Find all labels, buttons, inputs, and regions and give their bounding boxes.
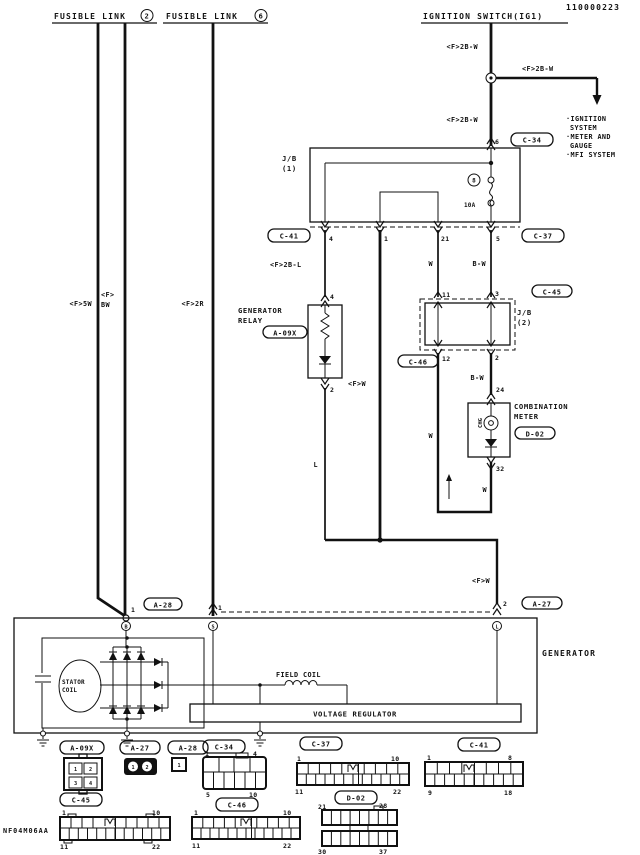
svg-text:1: 1 (131, 765, 134, 771)
svg-text:B: B (124, 624, 127, 630)
svg-text:S: S (211, 624, 214, 630)
ground-icon (37, 728, 49, 746)
pinout-a28-label: A-28 (179, 745, 198, 753)
pinout-c37: C-37 1 10 11 22 (295, 737, 409, 796)
connector-ref-a27: A-27 (522, 597, 562, 609)
svg-text:C-37: C-37 (534, 233, 553, 241)
diode-icon (154, 658, 162, 666)
svg-text:11: 11 (192, 842, 200, 850)
wire-code-w-upper: W (429, 260, 434, 268)
branch-destinations: ·IGNITION SYSTEM ·METER AND GAUGE ·MFI S… (566, 115, 615, 159)
svg-text:1: 1 (177, 763, 180, 769)
wire-code-2bw-2: <F>2B-W (522, 65, 554, 73)
wire-code-2bw-3: <F>2B-W (447, 116, 479, 124)
ground-icon (254, 722, 266, 746)
jb1-pin-out-1: 4 (329, 235, 333, 243)
diode-icon (137, 652, 145, 660)
svg-text:1: 1 (194, 809, 198, 817)
jb2-pin-out-1: 12 (442, 355, 450, 363)
svg-text:A-28: A-28 (154, 602, 173, 610)
svg-text:10: 10 (283, 809, 291, 817)
relay-label-l2: RELAY (238, 316, 263, 325)
svg-text:1: 1 (74, 767, 77, 773)
wire-code-2bw-1: <F>2B-W (447, 43, 479, 51)
combination-meter: CHG COMBINATION METER D-02 32 (468, 402, 568, 473)
jb2-pin-in-2: 3 (495, 290, 499, 298)
voltage-regulator-label: VOLTAGE REGULATOR (313, 710, 397, 719)
svg-text:10: 10 (152, 809, 160, 817)
connector-ref-a28: A-28 (144, 598, 182, 610)
gen-pin-b: 1 (131, 606, 135, 614)
svg-text:L: L (495, 624, 498, 630)
capacitor-icon (35, 673, 51, 683)
charge-lamp-icon (484, 416, 498, 430)
connector-key-icon (241, 819, 251, 826)
gen-pin-s: 1 (218, 604, 222, 612)
connector-ref-c37: C-37 (522, 229, 564, 242)
chevron-icon (493, 609, 501, 615)
pinout-c45-label: C-45 (72, 797, 91, 805)
jb1-pin-out-4: 5 (496, 235, 500, 243)
pinout-c37-label: C-37 (312, 741, 331, 749)
fusible-link-6-number: 6 (259, 12, 264, 21)
gen-pin-l: 2 (503, 600, 507, 608)
charge-lamp-label: CHG (478, 417, 484, 428)
flow-arrow-icon (446, 474, 452, 499)
arrow-down-icon (593, 95, 602, 105)
svg-text:4: 4 (89, 781, 92, 787)
destination-line: ·IGNITION (566, 115, 606, 123)
meter-label-l2: METER (514, 412, 539, 421)
svg-text:9: 9 (428, 789, 432, 797)
fusible-link-2-number: 2 (145, 12, 150, 21)
fusible-link-wires: <F>5W <F> BW <F>2R (70, 23, 213, 616)
pinout-a09x-label: A-09X (70, 745, 94, 753)
connector-ref-c45: C-45 (532, 285, 572, 297)
svg-text:30: 30 (318, 848, 326, 855)
destination-line: SYSTEM (570, 124, 597, 132)
generator-relay: 4 2 GENERATOR RELAY A-09X <F>W (238, 293, 366, 394)
relay-label-l1: GENERATOR (238, 306, 282, 315)
charging-system-wiring-diagram: 110000223 FUSIBLE LINK 2 FUSIBLE LINK 6 … (0, 0, 640, 855)
svg-text:1: 1 (297, 755, 301, 763)
generator-label: GENERATOR (542, 649, 596, 658)
svg-text:10: 10 (391, 755, 399, 763)
wire-code-fw-relay: <F>W (348, 380, 366, 388)
svg-text:22: 22 (283, 842, 291, 850)
terminal-s-icon: S (209, 622, 218, 631)
diode-icon (319, 356, 331, 364)
relay-pin-in: 4 (330, 293, 334, 301)
wire-code-bw-l1: <F> (101, 291, 114, 299)
svg-text:C-34: C-34 (523, 137, 542, 145)
diode-icon (137, 706, 145, 714)
svg-text:18: 18 (504, 789, 512, 797)
svg-text:C-46: C-46 (409, 359, 428, 367)
svg-text:22: 22 (152, 843, 160, 851)
meter-label-l1: COMBINATION (514, 402, 568, 411)
svg-text:1: 1 (62, 809, 66, 817)
svg-text:11: 11 (60, 843, 68, 851)
diode-icon (154, 681, 162, 689)
pinout-c41: C-41 1 8 9 18 (425, 738, 523, 797)
jb1-pin-out-3: 21 (441, 235, 449, 243)
rectifier-bridge (100, 636, 168, 721)
svg-text:A-27: A-27 (533, 601, 552, 609)
junction-dot (377, 537, 382, 542)
svg-text:2: 2 (145, 765, 148, 771)
jb1-label-l1: J/B (282, 154, 297, 163)
terminal-b-icon: B (122, 622, 131, 631)
wire-code-fw-gen: <F>W (472, 577, 490, 585)
wire-code-2bl: <F>2B-L (270, 261, 301, 269)
svg-text:11: 11 (295, 788, 303, 796)
diode-icon (123, 652, 131, 660)
jb2-label-l1: J/B (517, 308, 532, 317)
svg-text:A-09X: A-09X (273, 330, 297, 338)
svg-text:D-02: D-02 (526, 431, 545, 439)
jb2-label-l2: (2) (517, 318, 532, 327)
wire-code-l: L (314, 461, 319, 469)
pinout-a27-label: A-27 (131, 745, 150, 753)
resistor-icon (321, 313, 329, 339)
pinout-c41-label: C-41 (470, 742, 489, 750)
pinout-c34-label: C-34 (215, 744, 234, 752)
ignition-switch-label: IGNITION SWITCH(IG1) (423, 12, 543, 21)
svg-text:3: 3 (74, 781, 77, 787)
diagram-code: NF04M06AA (3, 827, 49, 835)
power-source-fusible-link-2: FUSIBLE LINK 2 (52, 10, 157, 24)
connector-ref-a09x: A-09X (263, 326, 307, 338)
pinout-c34: C-34 1 4 5 10 (203, 740, 266, 799)
splice-icon (486, 73, 496, 83)
lamp-circuit-run: L <F>W (314, 388, 498, 604)
wire-code-bw-l2: BW (101, 301, 110, 309)
jb1-pin-in: 6 (495, 138, 499, 146)
pinout-d02: D-02 21 28 30 37 (318, 791, 397, 855)
connector-ref-c41: C-41 (268, 229, 310, 242)
svg-text:8: 8 (508, 754, 512, 762)
field-coil: FIELD COIL (168, 671, 347, 704)
pinout-c45: C-45 1 10 11 22 (60, 793, 170, 851)
wire-code-bw-lower: B-W (471, 374, 485, 382)
junction-block-1: J/B (1) 8 10A (282, 148, 520, 222)
relay-pin-out: 2 (330, 386, 334, 394)
svg-text:C-45: C-45 (543, 289, 562, 297)
stator-label-l1: STATOR (62, 679, 85, 686)
stator-label-l2: COIL (62, 687, 77, 694)
jb2-pin-in-1: 11 (442, 291, 450, 299)
destination-line: ·METER AND (566, 133, 611, 141)
meter-pin-in: 24 (496, 386, 504, 394)
diode-icon (485, 439, 497, 447)
jb1-pin-out-2: 1 (384, 235, 388, 243)
wire-code-5w: <F>5W (70, 300, 93, 308)
connector-ref-d02: D-02 (515, 427, 555, 439)
generator: GENERATOR B S L STATOR COIL (14, 618, 596, 746)
destination-line: GAUGE (570, 142, 592, 150)
jb1-connector-row: C-41 C-37 4 1 21 5 (268, 221, 564, 243)
svg-text:37: 37 (379, 848, 387, 855)
inductor-icon (285, 681, 317, 686)
doc-number: 110000223 (566, 3, 620, 12)
power-source-fusible-link-6: FUSIBLE LINK 6 (163, 10, 268, 24)
svg-text:5: 5 (206, 791, 210, 799)
connector-key-icon (348, 765, 358, 772)
fusible-link-6-label: FUSIBLE LINK (166, 12, 238, 21)
svg-text:1: 1 (427, 754, 431, 762)
pinout-c46-label: C-46 (228, 802, 247, 810)
meter-pin-out: 32 (496, 465, 504, 473)
diode-icon (109, 652, 117, 660)
fuse-number: 8 (472, 178, 476, 185)
connector-key-icon (105, 819, 115, 826)
fuse-icon: 8 10A (464, 174, 494, 209)
wire-code-w-left: W (429, 432, 434, 440)
wire-code-bw-upper: B-W (473, 260, 487, 268)
fuse-rating: 10A (464, 202, 476, 209)
stator-coil (59, 660, 101, 712)
diode-icon (154, 704, 162, 712)
terminal-l-icon: L (493, 622, 502, 631)
wire-code-2r: <F>2R (182, 300, 205, 308)
svg-text:C-41: C-41 (280, 233, 299, 241)
pinout-a09x: A-09X 1 2 3 4 (60, 741, 104, 794)
connector-ref-c46: C-46 (398, 355, 438, 367)
power-source-ignition-switch: IGNITION SWITCH(IG1) (421, 12, 568, 23)
pinout-c46: C-46 1 10 11 22 (192, 798, 300, 850)
svg-text:22: 22 (393, 788, 401, 796)
diode-icon (123, 706, 131, 714)
destination-line: ·MFI SYSTEM (566, 151, 615, 159)
chevron-icon (321, 378, 329, 384)
svg-text:2: 2 (89, 767, 92, 773)
connector-key-icon (464, 765, 474, 772)
jb1-label-l2: (1) (282, 164, 297, 173)
diode-icon (109, 706, 117, 714)
jb2-pin-out-2: 2 (495, 354, 499, 362)
wiring-diagram-page: 110000223 FUSIBLE LINK 2 FUSIBLE LINK 6 … (0, 0, 640, 855)
connector-ref-c34: C-34 (511, 133, 553, 146)
wire-code-w-right: W (483, 486, 488, 494)
pinout-d02-label: D-02 (347, 795, 366, 803)
fusible-link-2-label: FUSIBLE LINK (54, 12, 126, 21)
field-coil-label: FIELD COIL (276, 671, 321, 679)
junction-block-2: 11 3 C-45 J/B (2) 12 2 C-46 (398, 285, 572, 367)
